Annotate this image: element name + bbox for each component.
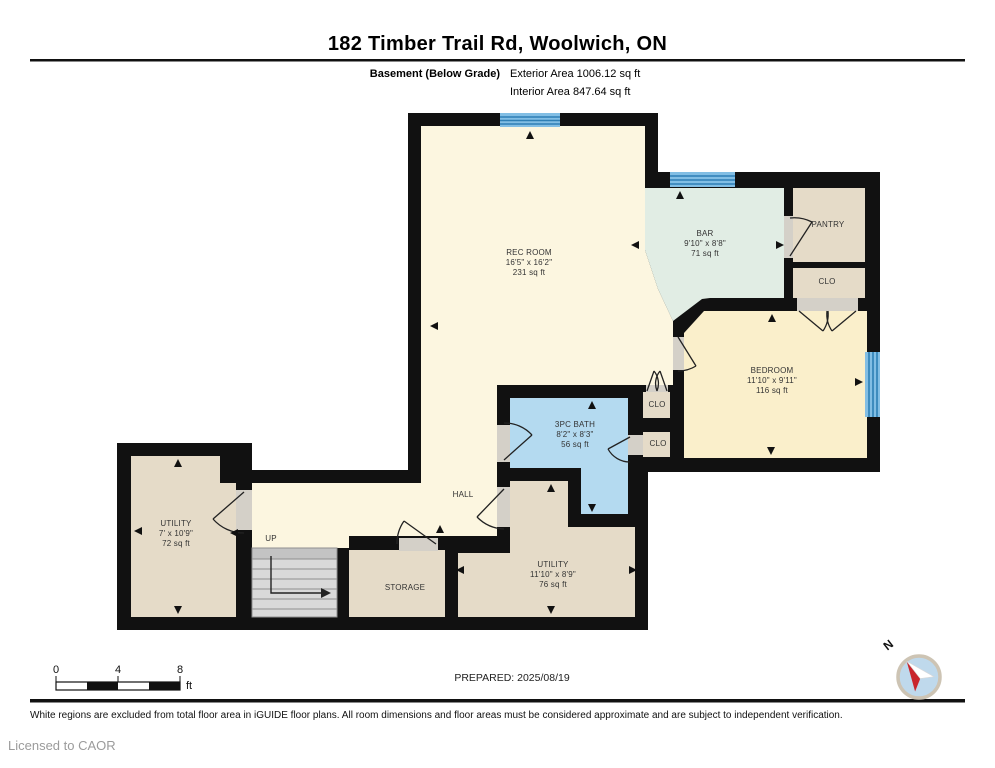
disclaimer-text: White regions are excluded from total fl…	[30, 710, 843, 721]
floor-label: Basement (Below Grade)	[300, 68, 500, 80]
stairs	[252, 548, 337, 617]
scale-unit: ft	[186, 680, 192, 692]
room-label-rec-room: REC ROOM16'5" x 16'2"231 sq ft	[506, 248, 552, 278]
room-label-bedroom: BEDROOM11'10" x 9'11"116 sq ft	[747, 366, 797, 396]
scale-tick-0: 0	[53, 664, 59, 676]
room-label-utility-lower: UTILITY11'10" x 8'9"76 sq ft	[530, 560, 576, 590]
room-label-pantry: PANTRY	[812, 220, 845, 230]
room-label-bar: BAR9'10" x 8'8"71 sq ft	[684, 229, 726, 259]
scale-tick-4: 4	[115, 664, 121, 676]
window-icon-bedroom	[865, 352, 880, 417]
exterior-area: Exterior Area 1006.12 sq ft	[510, 68, 640, 80]
room-label-hall: HALL	[453, 490, 474, 500]
room-label-utility-left: UTILITY7' x 10'9"72 sq ft	[159, 519, 193, 549]
room-label-up: UP	[265, 534, 277, 544]
page-title: 182 Timber Trail Rd, Woolwich, ON	[0, 33, 995, 56]
license-text: Licensed to CAOR	[8, 738, 116, 753]
floorplan-page: 182 Timber Trail Rd, Woolwich, ON Baseme…	[0, 0, 995, 768]
compass-icon	[897, 654, 940, 698]
window-icon-rec-room	[500, 113, 560, 127]
floor-plan	[0, 0, 995, 768]
room-label-bath: 3PC BATH8'2" x 8'3"56 sq ft	[555, 420, 595, 450]
window-icon-bar	[670, 172, 735, 187]
room-label-clo-upper: CLO	[818, 277, 835, 287]
scale-bar	[56, 676, 180, 690]
prepared-date: PREPARED: 2025/08/19	[412, 672, 612, 684]
room-label-storage: STORAGE	[385, 583, 425, 593]
interior-area: Interior Area 847.64 sq ft	[510, 86, 630, 98]
scale-tick-8: 8	[177, 664, 183, 676]
room-label-clo-1: CLO	[648, 400, 665, 410]
room-label-clo-2: CLO	[649, 439, 666, 449]
